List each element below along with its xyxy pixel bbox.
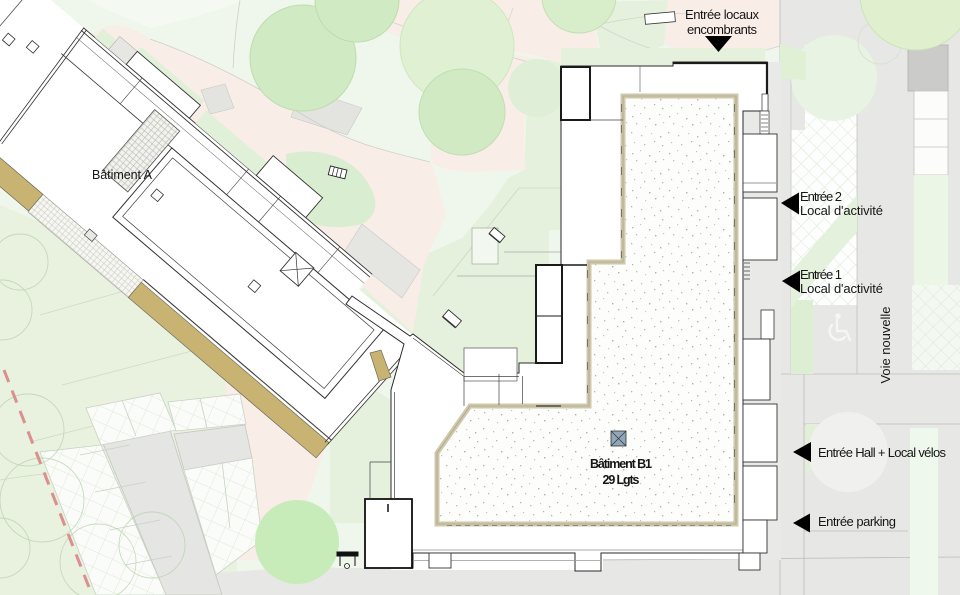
- svg-text:Voie nouvelle: Voie nouvelle: [878, 307, 893, 384]
- svg-text:Entrée Hall + Local vélos: Entrée Hall + Local vélos: [818, 445, 947, 460]
- svg-text:Entrée 1: Entrée 1: [800, 267, 842, 282]
- svg-text:Entrée locaux: Entrée locaux: [685, 7, 760, 22]
- svg-text:Bâtiment B1: Bâtiment B1: [590, 457, 652, 471]
- svg-text:encombrants: encombrants: [687, 22, 758, 37]
- svg-text:Entrée 2: Entrée 2: [800, 189, 842, 204]
- svg-text:29 Lgts: 29 Lgts: [603, 473, 640, 487]
- svg-text:Bâtiment A: Bâtiment A: [92, 168, 153, 182]
- svg-text:Local d'activité: Local d'activité: [800, 203, 883, 218]
- svg-text:Entrée parking: Entrée parking: [818, 514, 896, 529]
- svg-text:Local d'activité: Local d'activité: [800, 281, 883, 296]
